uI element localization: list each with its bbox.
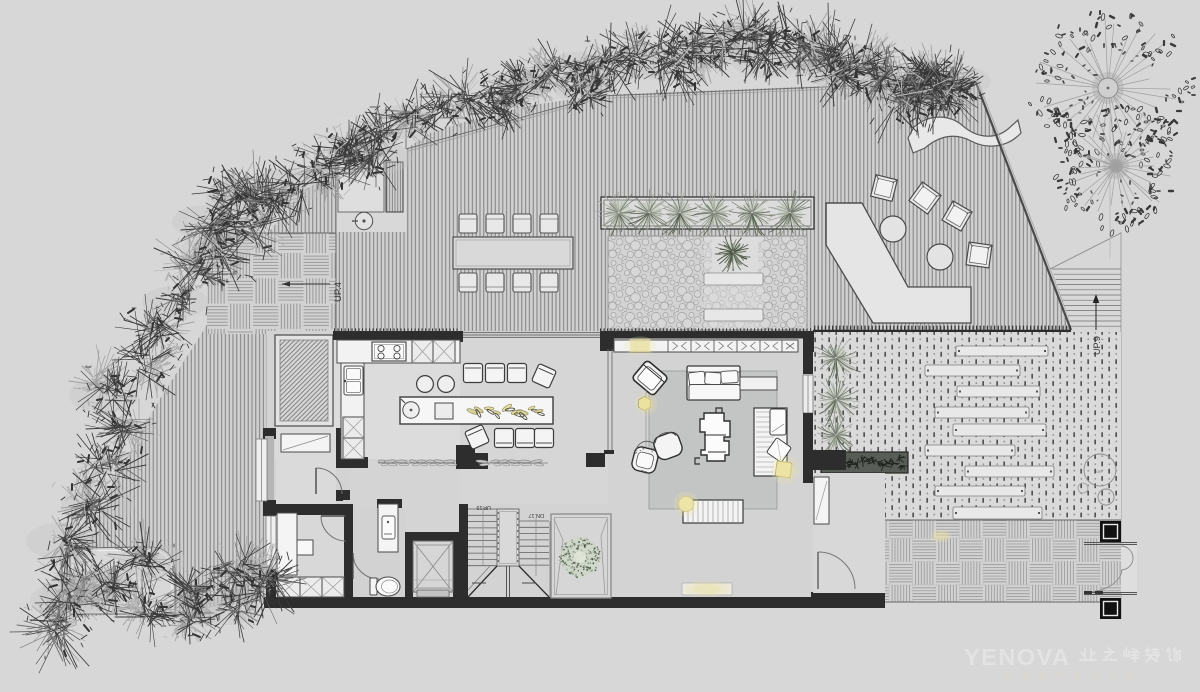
svg-text:DN.17: DN.17 (528, 512, 544, 518)
svg-text:UP.19: UP.19 (476, 504, 491, 510)
svg-text:UP.9: UP.9 (1092, 336, 1102, 355)
svg-text:YENOVA: YENOVA (964, 644, 1071, 670)
svg-text:UP.4: UP.4 (333, 282, 344, 302)
svg-text:GR: GR (1096, 469, 1102, 474)
